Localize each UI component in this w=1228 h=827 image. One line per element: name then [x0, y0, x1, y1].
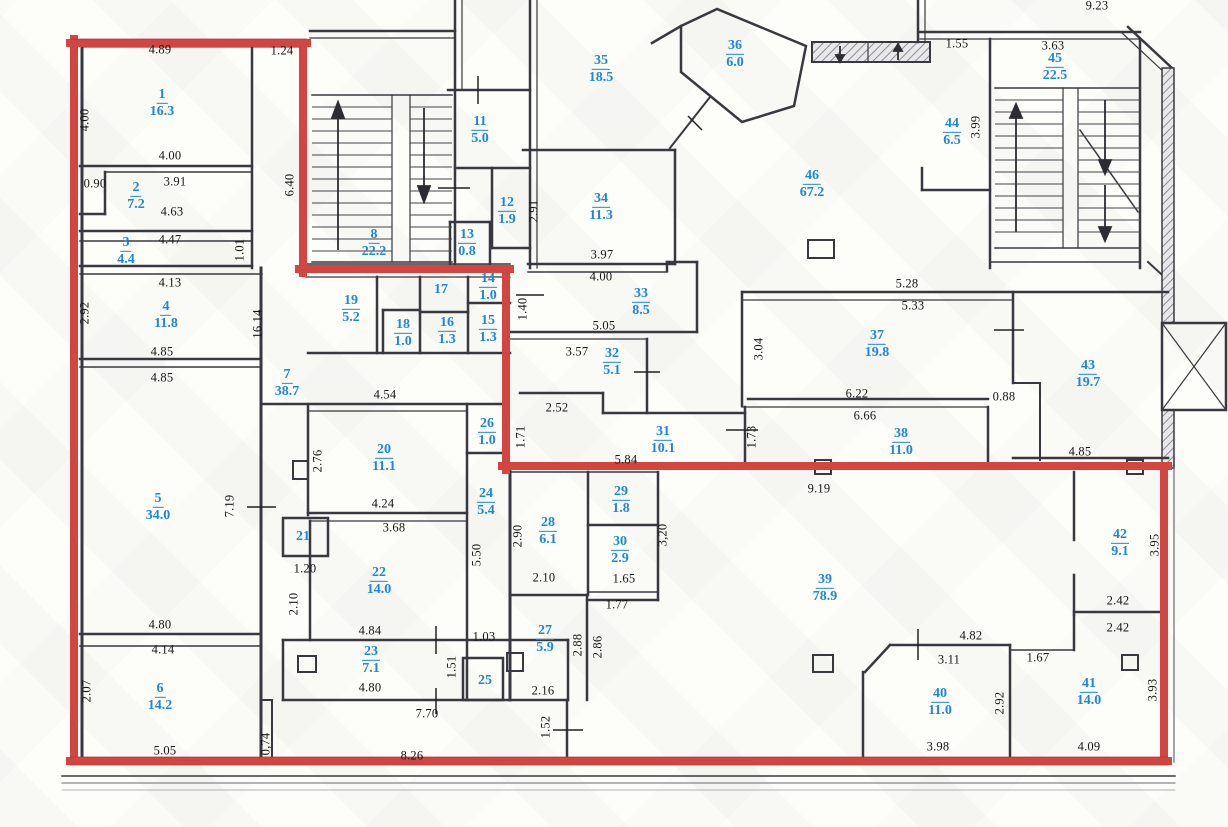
down-arrow-icon [418, 186, 430, 202]
up-arrow-icon [332, 102, 344, 118]
stair-arrows [332, 44, 1111, 250]
floor-plan: 116.327.234.4411.8534.0614.2738.7822.211… [0, 0, 1228, 827]
walls-layer [0, 0, 1228, 827]
red-boundary [70, 39, 1168, 761]
down-arrow-icon [1099, 227, 1111, 241]
up-arrow-icon [1010, 104, 1022, 118]
